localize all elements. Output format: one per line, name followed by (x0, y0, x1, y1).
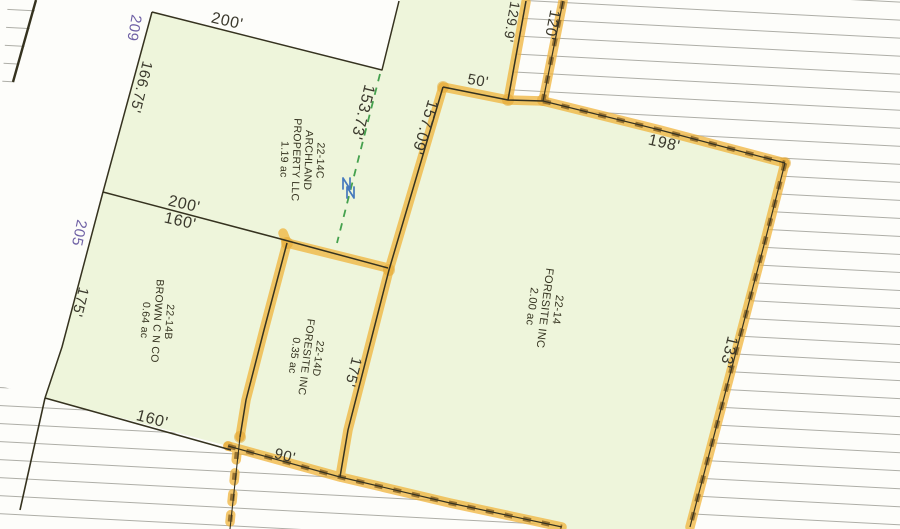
dimension-label-d50: 50' (466, 71, 490, 91)
plat-map-canvas: 200'166.75'153.73'157.09'50'129.9'120'19… (0, 0, 900, 529)
parcel-label-22-14B: 22-14BBROWN C N CO0.64 ac (136, 278, 178, 364)
parcel-label-22-14C: 22-14CARCHLANDPROPERTY LLC1.19 ac (277, 118, 328, 203)
